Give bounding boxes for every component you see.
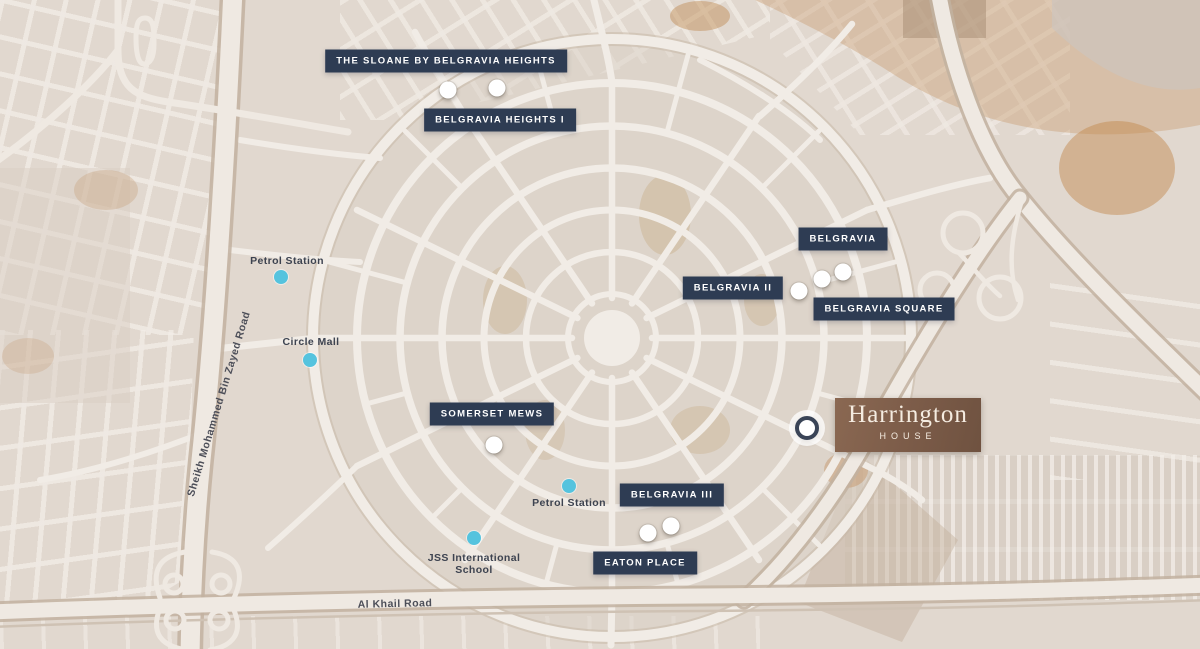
harrington-name: Harrington bbox=[835, 398, 981, 431]
poi-jss-line1: JSS International bbox=[428, 552, 521, 564]
dot-belgravia[interactable] bbox=[835, 264, 852, 281]
dot-circle-mall bbox=[303, 353, 317, 367]
label-belgravia-heights-i[interactable]: BELGRAVIA HEIGHTS I bbox=[424, 109, 576, 132]
dot-sloane-b[interactable] bbox=[489, 80, 506, 97]
dot-belgravia-iii-a[interactable] bbox=[663, 518, 680, 535]
dot-sloane-a[interactable] bbox=[440, 82, 457, 99]
dot-somerset-mews[interactable] bbox=[486, 437, 503, 454]
dot-belgravia-ii[interactable] bbox=[791, 283, 808, 300]
label-somerset-mews[interactable]: SOMERSET MEWS bbox=[430, 403, 554, 426]
poi-circle-mall: Circle Mall bbox=[283, 336, 340, 348]
marker-harrington-house[interactable] bbox=[795, 416, 819, 440]
label-belgravia[interactable]: BELGRAVIA bbox=[799, 228, 888, 251]
label-belgravia-ii[interactable]: BELGRAVIA II bbox=[683, 277, 783, 300]
poi-jss-school: JSS International School bbox=[428, 552, 521, 576]
dot-petrol-station-south bbox=[562, 479, 576, 493]
road-label-sheikh-mohammed-bin-zayed: Sheikh Mohammed Bin Zayed Road bbox=[185, 310, 253, 498]
label-eaton-place[interactable]: EATON PLACE bbox=[593, 552, 697, 575]
poi-petrol-station-north: Petrol Station bbox=[250, 255, 324, 267]
harrington-subtitle: HOUSE bbox=[835, 431, 981, 441]
location-map: THE SLOANE BY BELGRAVIA HEIGHTS BELGRAVI… bbox=[0, 0, 1200, 649]
dot-petrol-station-north bbox=[274, 270, 288, 284]
dot-belgravia-iii-b[interactable] bbox=[640, 525, 657, 542]
dot-jss-school bbox=[467, 531, 481, 545]
road-label-al-khail: Al Khail Road bbox=[357, 597, 432, 611]
label-harrington-house[interactable]: Harrington HOUSE bbox=[835, 398, 981, 452]
label-belgravia-square[interactable]: BELGRAVIA SQUARE bbox=[814, 298, 955, 321]
poi-jss-line2: School bbox=[428, 564, 521, 576]
dot-belgravia-sq[interactable] bbox=[814, 271, 831, 288]
map-overlay: THE SLOANE BY BELGRAVIA HEIGHTS BELGRAVI… bbox=[0, 0, 1200, 649]
poi-petrol-station-south: Petrol Station bbox=[532, 497, 606, 509]
label-the-sloane[interactable]: THE SLOANE BY BELGRAVIA HEIGHTS bbox=[325, 50, 567, 73]
label-belgravia-iii[interactable]: BELGRAVIA III bbox=[620, 484, 724, 507]
